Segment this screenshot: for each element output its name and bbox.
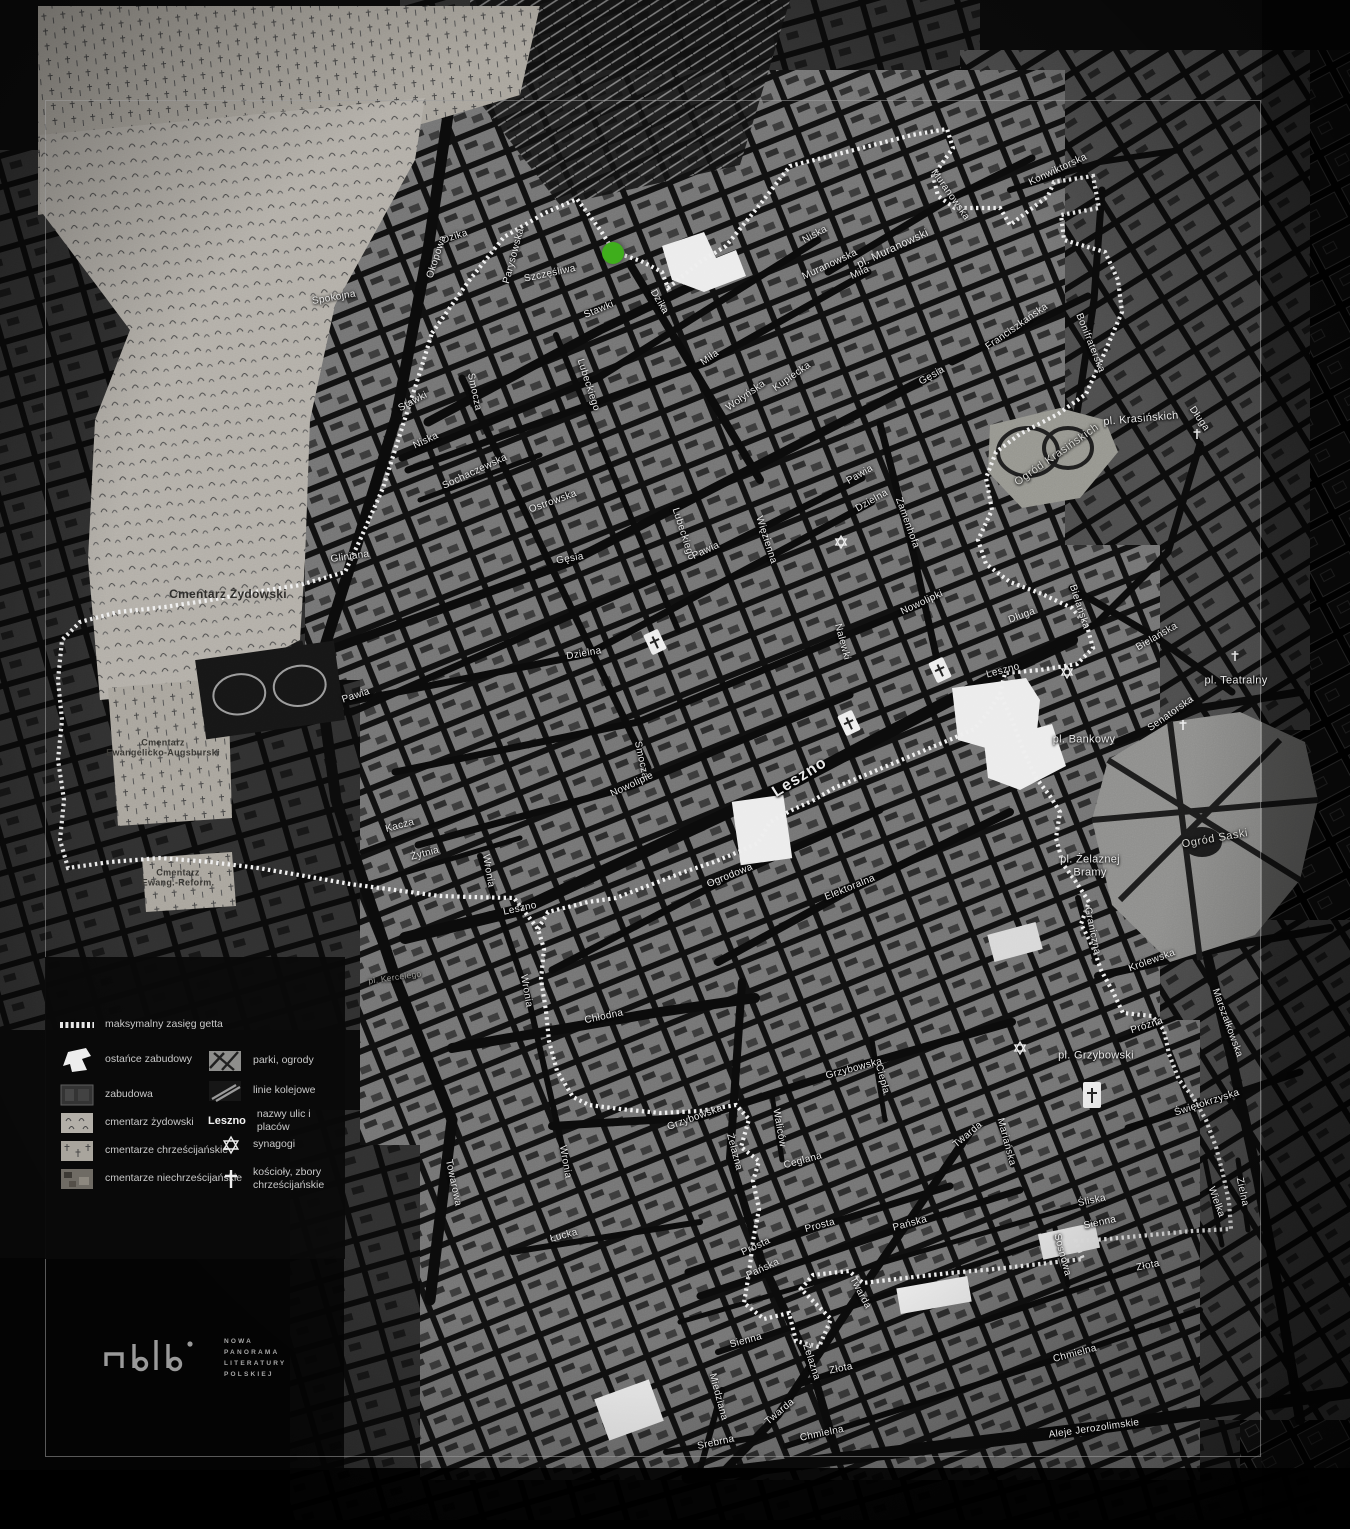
legend-row-kolej: linie kolejowe xyxy=(208,1080,315,1102)
surviving-buildings-swatch xyxy=(60,1046,94,1074)
legend-label: kościoły, zbory chrześcijańskie xyxy=(253,1166,324,1192)
legend-label: synagogi xyxy=(253,1138,295,1151)
church-cross-icon xyxy=(208,1166,242,1192)
legend-panel: maksymalny zasięg getta ostańce zabudowy… xyxy=(45,957,345,1259)
legend-row-cm-zydowski: cmentarz żydowski xyxy=(60,1112,194,1134)
legend-row-synagogi: synagogi xyxy=(208,1134,295,1156)
jewish-cemetery-swatch xyxy=(60,1112,94,1134)
legend-label: ostańce zabudowy xyxy=(105,1053,192,1066)
map-canvas[interactable] xyxy=(0,0,1350,1529)
legend-label: zabudowa xyxy=(105,1088,153,1101)
built-area-swatch xyxy=(60,1084,94,1106)
nplp-logo-glyphs xyxy=(100,1332,210,1384)
legend-row-nazwy: Leszno nazwy ulic i placów xyxy=(208,1108,345,1134)
legend-row-ghetto: maksymalny zasięg getta xyxy=(60,1018,223,1031)
street-name-sample: Leszno xyxy=(208,1115,246,1127)
nplp-wordmark: NOWA PANORAMA LITERATURY POLSKIEJ xyxy=(224,1336,286,1380)
ghetto-boundary-swatch xyxy=(60,1021,94,1029)
legend-row-ostance: ostańce zabudowy xyxy=(60,1046,192,1074)
legend-label: nazwy ulic i placów xyxy=(257,1108,345,1134)
legend-label: maksymalny zasięg getta xyxy=(105,1018,223,1031)
legend-row-zabudowa: zabudowa xyxy=(60,1084,153,1106)
parks-swatch xyxy=(208,1050,242,1072)
railways-swatch xyxy=(208,1080,242,1102)
ghetto-map-page: DzikaOkopowaParysowskaSzczęśliwaStawkiSt… xyxy=(0,0,1350,1529)
legend-row-parki: parki, ogrody xyxy=(208,1050,314,1072)
legend-label: cmentarz żydowski xyxy=(105,1116,194,1129)
nplp-logo[interactable]: NOWA PANORAMA LITERATURY POLSKIEJ xyxy=(100,1328,330,1388)
location-marker[interactable] xyxy=(602,242,624,264)
christian-cemeteries-swatch xyxy=(60,1140,94,1162)
synagogue-star-icon xyxy=(208,1134,242,1156)
non-christian-cemeteries-swatch xyxy=(60,1168,94,1190)
legend-row-cm-chrzesc: cmentarze chrześcijańskie xyxy=(60,1140,228,1162)
legend-row-koscioly: kościoły, zbory chrześcijańskie xyxy=(208,1166,324,1192)
legend-label: linie kolejowe xyxy=(253,1084,315,1097)
legend-label: parki, ogrody xyxy=(253,1054,314,1067)
